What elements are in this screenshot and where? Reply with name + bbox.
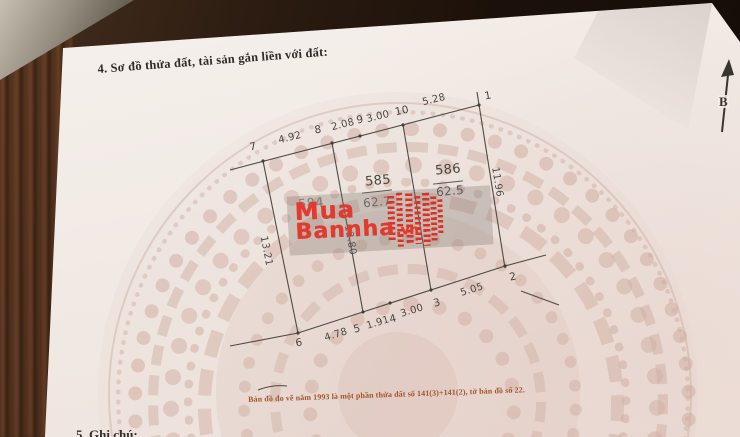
watermark-logo: Mua Bannha .vn xyxy=(294,195,419,244)
next-section-partial: 5. Ghi chú: xyxy=(76,427,138,437)
parcel-number: 585 xyxy=(365,172,392,189)
document-photo: 4. Sơ đồ thửa đất, tài sản gắn liền với … xyxy=(0,0,740,437)
parcel-number: 586 xyxy=(435,161,462,178)
watermark-suffix: .vn xyxy=(396,224,419,238)
north-arrow-label: B xyxy=(718,95,729,108)
certificate-page: 4. Sơ đồ thửa đất, tài sản gắn liền với … xyxy=(0,0,740,437)
watermark-word2: Bannha xyxy=(295,218,395,244)
